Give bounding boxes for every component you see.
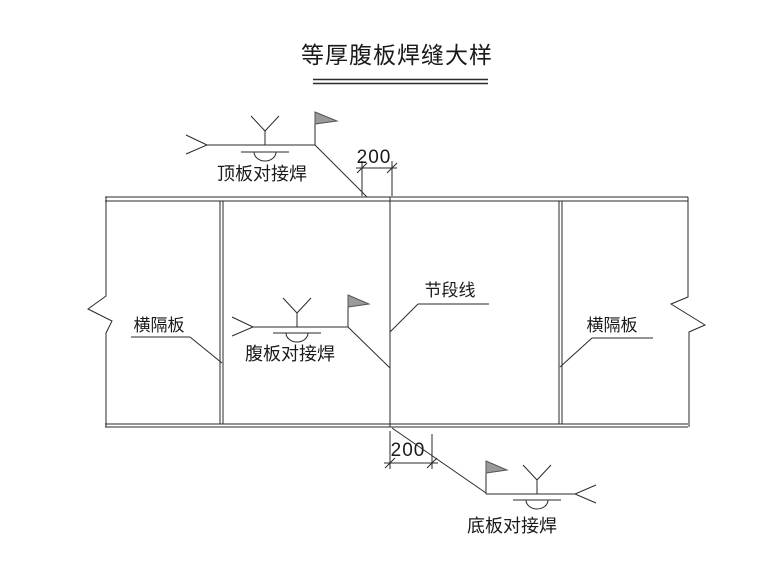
- diaphragm-left-callout: 横隔板: [131, 316, 222, 363]
- weld-web-tail-fork: [232, 317, 253, 336]
- weld-bottom-field-flag-icon: [486, 461, 507, 473]
- weld-bottom-label: 底板对接焊: [467, 516, 557, 536]
- weld-top-label: 顶板对接焊: [217, 164, 307, 184]
- segment-line-leader-line: [390, 304, 418, 332]
- dim-top-value: 200: [357, 147, 392, 168]
- weld-web-vgroove-arm-left: [283, 298, 297, 313]
- drawing-canvas: 等厚腹板焊缝大样 200 200: [0, 0, 760, 569]
- diaphragm-right-label: 横隔板: [587, 316, 638, 335]
- diaphragm-right-callout: 横隔板: [560, 316, 653, 367]
- weld-web-leader-line: [348, 327, 390, 368]
- segment-line-label: 节段线: [425, 281, 476, 300]
- bottom-plate: [105, 424, 688, 427]
- weld-top-tail-fork: [186, 135, 207, 154]
- weld-bottom-tail-fork: [575, 485, 596, 503]
- diaphragm-left-label: 横隔板: [134, 316, 185, 335]
- top-plate: [105, 197, 688, 201]
- weld-bottom-vgroove-arm-right: [537, 465, 551, 480]
- dim-bottom-value: 200: [391, 440, 426, 461]
- weld-top-vgroove-arm-right: [265, 116, 279, 131]
- weld-top-backing-arc: [254, 152, 276, 161]
- dimension-bottom: 200: [384, 431, 438, 469]
- drawing-title: 等厚腹板焊缝大样: [301, 42, 493, 68]
- weld-symbol-web-plate: 腹板对接焊: [232, 295, 390, 368]
- weld-web-label: 腹板对接焊: [245, 344, 335, 364]
- dimension-top: 200: [356, 147, 397, 196]
- weld-web-backing-arc: [286, 333, 308, 342]
- diaphragm-left-plate: [220, 201, 223, 424]
- weld-top-vgroove-arm-left: [251, 116, 265, 131]
- left-edge-break-line: [88, 197, 112, 427]
- weld-bottom-vgroove-arm-left: [523, 465, 537, 480]
- segment-line-callout: 节段线: [390, 281, 489, 332]
- weld-web-field-flag-icon: [348, 295, 369, 307]
- diaphragm-left-leader-line: [190, 337, 222, 363]
- weld-bottom-backing-arc: [526, 500, 548, 509]
- drawing-page: 等厚腹板焊缝大样 200 200: [0, 0, 760, 569]
- right-edge-break-line: [671, 197, 705, 427]
- diaphragm-right-leader-line: [560, 338, 592, 367]
- diaphragm-right-plate: [559, 201, 562, 424]
- weld-top-field-flag-icon: [315, 112, 337, 124]
- weld-symbol-top-plate: 顶板对接焊: [186, 112, 367, 197]
- weld-web-vgroove-arm-right: [297, 298, 311, 313]
